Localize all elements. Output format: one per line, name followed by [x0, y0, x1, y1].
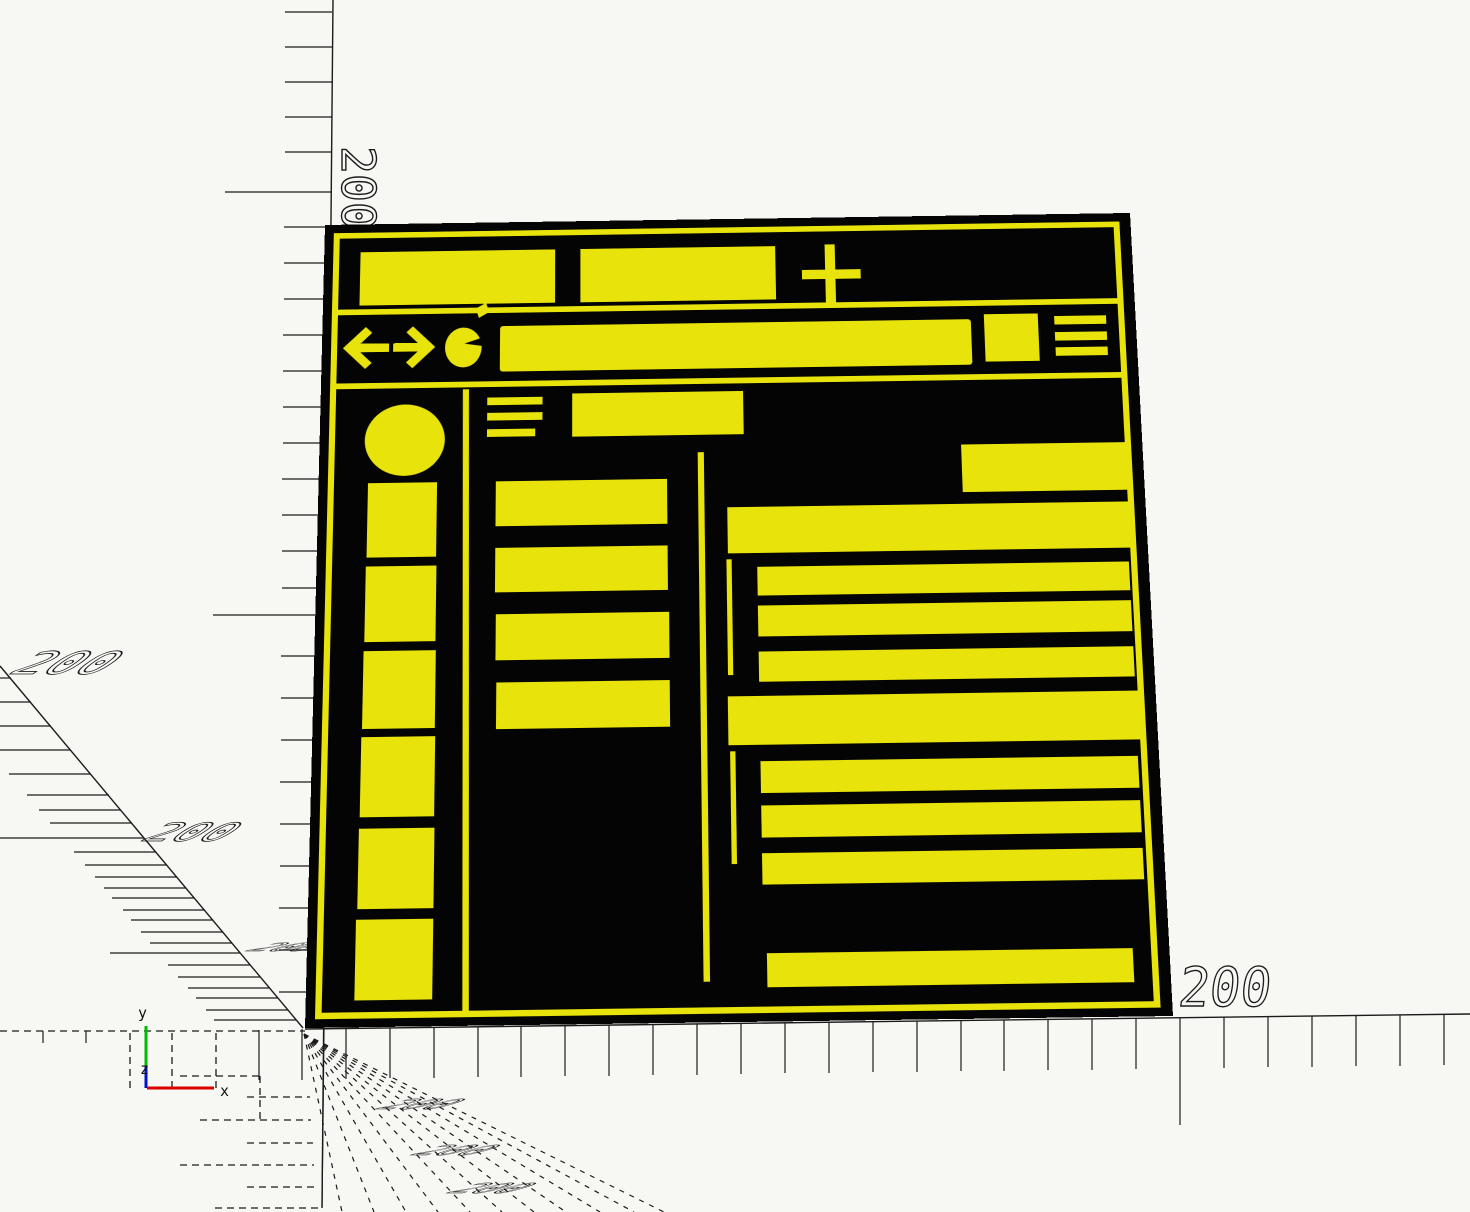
sidebar-item-shape-4: [360, 736, 436, 817]
bottom-ruler: [43, 1014, 1470, 1207]
content-text-line-5: [761, 800, 1142, 837]
list-item-shape-4: [496, 680, 670, 729]
dim-label-ruler-left: 200: [331, 146, 385, 230]
dim-label-flat-2: 200: [396, 1143, 514, 1159]
dim-label-diagonal-lower: 200: [129, 817, 257, 847]
axis-y-label: y: [138, 1004, 147, 1022]
dim-label-flat-1: 200: [361, 1097, 479, 1113]
forward-arrow-shaft: [393, 347, 429, 348]
content-hamburger-icon: [487, 397, 543, 437]
sidebar-item-shape-2: [364, 566, 436, 643]
list-item-shape-2: [495, 545, 668, 592]
nav-square-button-shape: [984, 313, 1040, 361]
menu-hamburger-icon: [1054, 315, 1108, 356]
content-text-line-2: [758, 600, 1133, 636]
sidebar-item-shape-1: [367, 482, 438, 557]
tab-shape-2: [580, 246, 776, 302]
content-text-line-3: [759, 646, 1135, 682]
list-item-shape-1: [495, 479, 667, 526]
dim-label-bottom-right: 200: [1175, 956, 1275, 1019]
dim-label-diagonal-upper: 200: [0, 646, 140, 682]
browser-window-drawing[interactable]: [305, 213, 1173, 1028]
axis-z-label: z: [140, 1060, 149, 1078]
sidebar-item-shape-6: [354, 919, 433, 1001]
address-bar-shape: [500, 319, 973, 371]
content-text-line-6: [762, 848, 1144, 885]
list-item-shape-3: [495, 612, 669, 661]
sidebar-item-shape-3: [362, 650, 436, 729]
content-text-line-7: [767, 948, 1134, 987]
scroll-mark-line-2: [733, 751, 735, 864]
back-arrow-shaft: [349, 348, 389, 349]
axis-x-label: x: [220, 1082, 229, 1100]
action-button-shape: [961, 442, 1128, 492]
cad-viewport[interactable]: 200 200 200 200 200 200 200 200 y z x: [0, 0, 1470, 1212]
dashed-construction-grid: [0, 1031, 318, 1208]
sidebar-item-shape-5: [357, 828, 434, 910]
content-heading-bar-2: [728, 691, 1140, 746]
scroll-mark-line-1: [729, 559, 731, 675]
tab-shape-1: [359, 249, 555, 305]
content-text-line-1: [757, 561, 1130, 595]
content-heading-bar-1: [727, 501, 1130, 553]
page-title-shape: [572, 391, 744, 437]
content-text-line-4: [760, 756, 1139, 793]
